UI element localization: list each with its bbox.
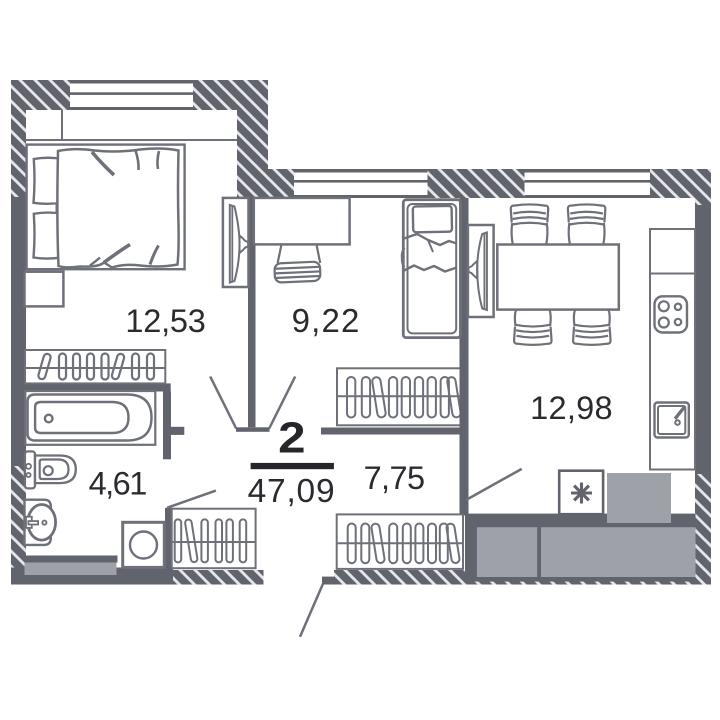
svg-text:12,98: 12,98 [530,390,613,426]
svg-text:12,53: 12,53 [125,303,205,339]
svg-text:7,75: 7,75 [364,460,425,496]
svg-text:2: 2 [278,413,305,462]
svg-text:9,22: 9,22 [292,302,361,339]
svg-text:4,61: 4,61 [89,465,147,501]
svg-text:47,09: 47,09 [248,473,336,510]
